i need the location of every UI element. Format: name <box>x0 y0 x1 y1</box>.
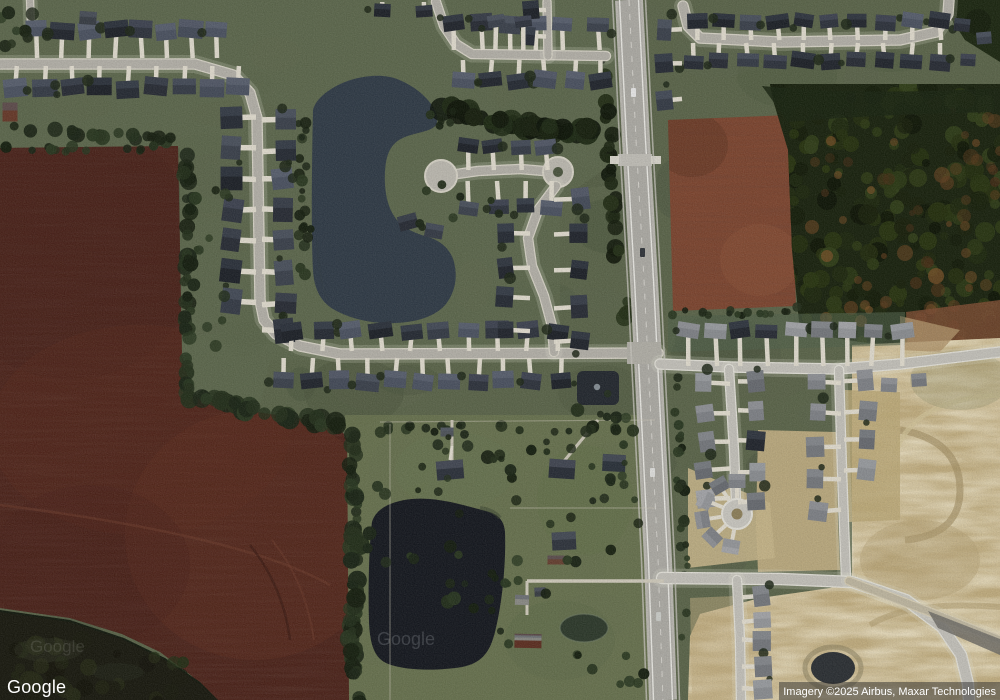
svg-text:Imagery ©2025 Airbus, Maxar Te: Imagery ©2025 Airbus, Maxar Technologies <box>783 686 996 698</box>
svg-text:Google: Google <box>30 637 85 656</box>
svg-text:Google: Google <box>377 629 435 649</box>
svg-text:Google: Google <box>7 677 66 697</box>
